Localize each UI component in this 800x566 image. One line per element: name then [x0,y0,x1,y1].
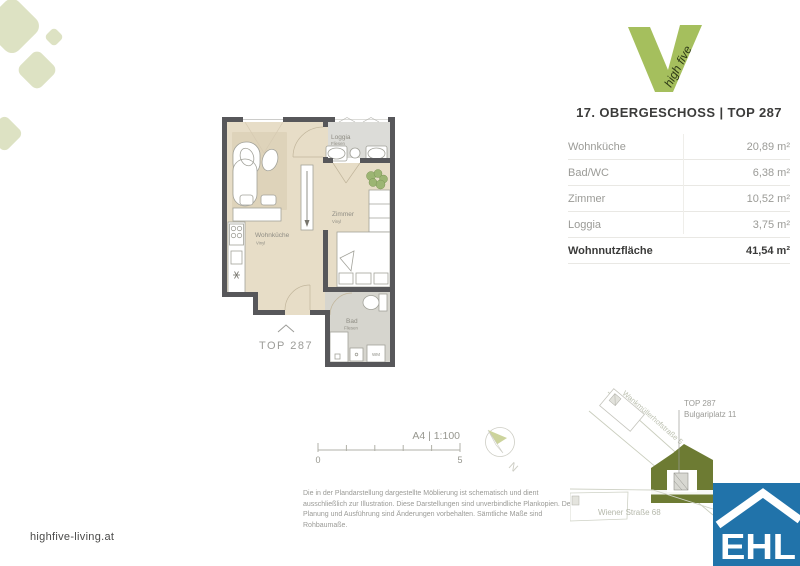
floor-plan: WM [213,115,403,375]
scale-start: 0 [315,455,320,465]
table-row: Loggia 3,75 m² [568,212,790,238]
website-link[interactable]: highfive-living.at [30,531,114,543]
row-value: 20,89 m² [747,141,790,153]
floorplan-sheet: high five 17. OBERGESCHOSS | TOP 287 Woh… [0,0,800,566]
row-label: Zimmer [568,193,605,205]
floor-label-bad: Fliesen [344,326,358,331]
room-label-zimmer: Zimmer [332,211,355,218]
row-label: Bad/WC [568,167,609,179]
unit-label: TOP 287 [259,340,313,352]
area-panel: 17. OBERGESCHOSS | TOP 287 Wohnküche 20,… [568,105,790,264]
table-row: Zimmer 10,52 m² [568,186,790,212]
ehl-logo: EHL [713,483,800,566]
unit-callout: TOP 287 [259,325,313,352]
shower [330,332,348,362]
highfive-v-logo: high five [612,12,722,100]
floor-label-zimmer: Vinyl [332,219,341,224]
unit-footprint-hatch [674,473,688,490]
room-label-bad: Bad [346,318,358,325]
toilet [363,294,387,311]
row-value: 10,52 m² [747,193,790,205]
room-label-loggia: Loggia [331,134,351,141]
table-divider [683,134,684,234]
street-label-bottom: Wiener Straße 68 [598,508,661,517]
table-row-total: Wohnnutzfläche 41,54 m² [568,238,790,264]
ehl-roof-icon [718,493,800,525]
total-value: 41,54 m² [746,245,790,257]
floor-label-wohnkueche: Vinyl [256,241,265,246]
kitchen-counter [228,222,245,296]
ehl-logo-text: EHL [720,526,796,566]
washing-machine-label: WM [372,352,380,357]
table-row: Bad/WC 6,38 m² [568,160,790,186]
table-row: Wohnküche 20,89 m² [568,134,790,160]
north-label: N [506,460,520,474]
scale-end: 5 [457,455,462,465]
washing-machine: WM [367,345,385,362]
scale-format-label: A4 | 1:100 [412,430,460,442]
room-label-wohnkueche: Wohnküche [255,232,290,239]
row-label: Loggia [568,219,601,231]
callout-address: Bulgariplatz 11 [684,410,737,419]
diamond-decoration-medium [16,49,58,91]
bed [337,232,390,287]
row-value: 6,38 m² [753,167,790,179]
row-label: Wohnküche [568,141,626,153]
washbasin [350,348,363,361]
disclaimer-text: Die in der Plandarstellung dargestellte … [303,489,577,531]
area-table: Wohnküche 20,89 m² Bad/WC 6,38 m² Zimmer… [568,134,790,264]
chevron-up-icon [278,325,294,332]
callout-top: TOP 287 [684,399,716,408]
north-arrow-icon: N [477,421,527,476]
scale-ticks [318,443,460,452]
diamond-decoration-small [44,27,64,47]
diamond-decoration-lower [0,114,24,152]
wardrobe [369,190,390,232]
row-value: 3,75 m² [753,219,790,231]
total-label: Wohnnutzfläche [568,245,653,257]
floor-label-loggia: Fliesen [331,141,345,146]
diamond-decoration-large [0,0,43,57]
page-title: 17. OBERGESCHOSS | TOP 287 [568,105,790,120]
sliding-door [301,165,313,230]
